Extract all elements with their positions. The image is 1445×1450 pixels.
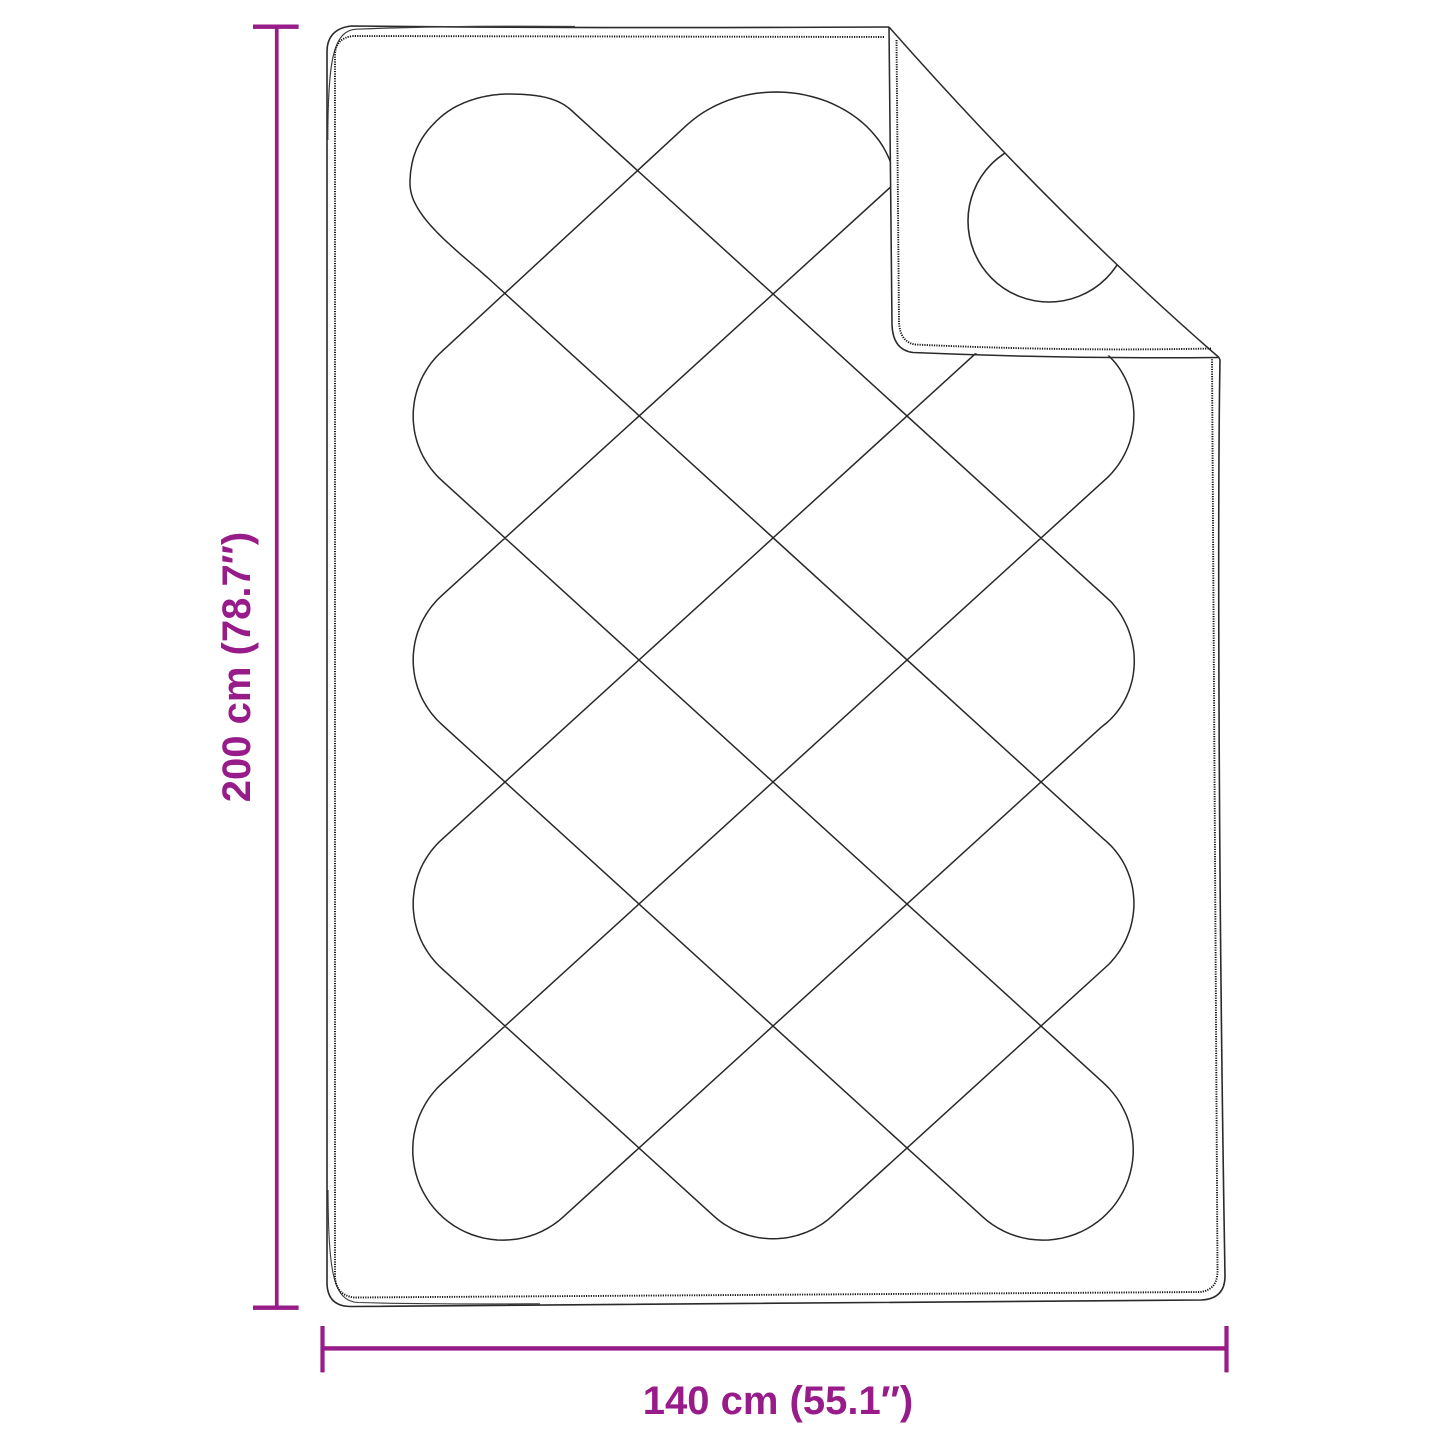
svg-text:140 cm (55.1″): 140 cm (55.1″) [643,1379,913,1423]
svg-text:200 cm (78.7″): 200 cm (78.7″) [215,532,259,802]
